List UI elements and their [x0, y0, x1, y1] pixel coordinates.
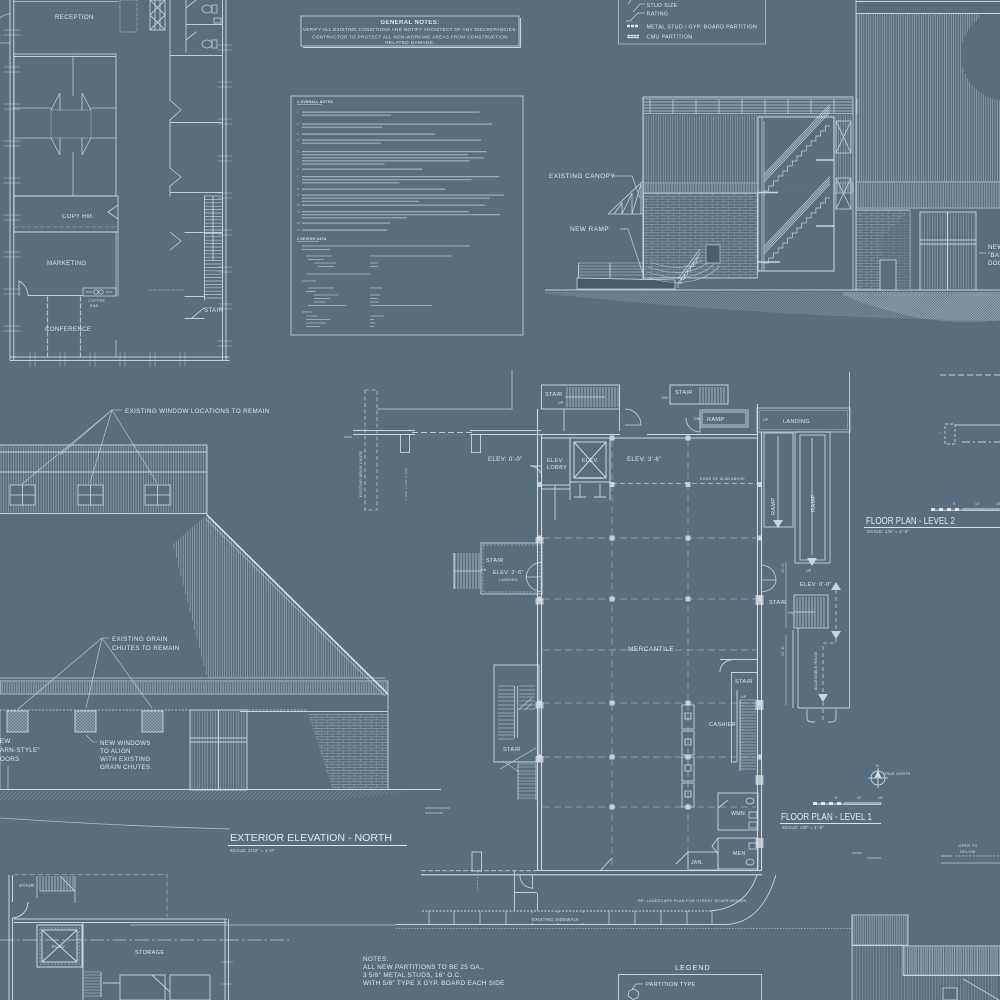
svg-text:ELEV.: ELEV. — [52, 944, 66, 949]
svg-text:WMN.: WMN. — [731, 811, 747, 817]
svg-text:ARN-STYLE": ARN-STYLE" — [0, 747, 40, 754]
svg-text:STUD SIZE: STUD SIZE — [647, 3, 678, 9]
svg-text:15': 15' — [878, 796, 883, 800]
svg-text:STAIR: STAIR — [675, 390, 693, 396]
svg-text:15': 15' — [996, 502, 1000, 506]
svg-text:EDGE OF SLAB ABOVE: EDGE OF SLAB ABOVE — [700, 477, 745, 481]
svg-text:5': 5' — [835, 796, 838, 800]
svg-text:TO ALIGN: TO ALIGN — [100, 748, 131, 755]
svg-text:RAMP: RAMP — [811, 495, 817, 512]
svg-text:STORAGE: STORAGE — [135, 950, 164, 956]
svg-text:CONTRACTOR TO PROTECT ALL NON-: CONTRACTOR TO PROTECT ALL NON-WORKING AR… — [312, 35, 507, 40]
svg-text:EXISTING GRAIN: EXISTING GRAIN — [112, 636, 168, 643]
svg-text:ALL NEW PARTITIONS TO BE 25 GA: ALL NEW PARTITIONS TO BE 25 GA., — [363, 964, 484, 971]
svg-text:RELATED DAMAGE.: RELATED DAMAGE. — [385, 40, 435, 46]
svg-text:ELEV: 3'-6": ELEV: 3'-6" — [627, 456, 662, 463]
svg-text:NEW RAMP: NEW RAMP — [570, 226, 609, 233]
svg-text:10'-6": 10'-6" — [781, 645, 785, 656]
svg-text:BAR: BAR — [90, 304, 99, 308]
svg-text:STAIR: STAIR — [545, 392, 563, 398]
svg-text:DN: DN — [481, 568, 487, 572]
svg-text:COPY RM.: COPY RM. — [62, 214, 94, 220]
svg-text:CASHIER: CASHIER — [709, 722, 736, 728]
svg-text:SCALE: 3/32" = 1'-0": SCALE: 3/32" = 1'-0" — [230, 848, 275, 853]
svg-text:EXISTING GRAIN CHUTE: EXISTING GRAIN CHUTE — [359, 450, 363, 497]
svg-text:COFFEE: COFFEE — [88, 299, 105, 303]
svg-text:10': 10' — [857, 796, 862, 800]
svg-text:LEGEND: LEGEND — [675, 963, 711, 972]
svg-text:SCALE: 1/8" = 1'-0": SCALE: 1/8" = 1'-0" — [867, 529, 909, 534]
svg-text:WITH 5/8" TYPE X GYP. BOARD EA: WITH 5/8" TYPE X GYP. BOARD EACH SIDE — [363, 980, 505, 987]
svg-text:STAIR: STAIR — [486, 558, 504, 564]
svg-text:LOBBY: LOBBY — [547, 465, 567, 471]
svg-text:STAIR: STAIR — [735, 679, 753, 685]
svg-text:OORS: OORS — [0, 756, 19, 763]
svg-text:NOTES:: NOTES: — [363, 956, 389, 963]
svg-text:RATING: RATING — [647, 12, 669, 18]
svg-text:LANDING: LANDING — [783, 419, 810, 425]
svg-text:DN: DN — [662, 396, 668, 400]
svg-text:LANDING: LANDING — [499, 578, 518, 582]
svg-text:MARKETING: MARKETING — [47, 260, 86, 267]
svg-text:EXISTING SIDEWALK: EXISTING SIDEWALK — [532, 917, 579, 922]
svg-text:"BARN-STYLE": "BARN-STYLE" — [988, 252, 1000, 259]
svg-text:MEN: MEN — [733, 851, 745, 857]
svg-text:STAIR: STAIR — [204, 307, 223, 314]
svg-text:1 OVERALL NOTES: 1 OVERALL NOTES — [297, 100, 334, 104]
svg-text:DN: DN — [788, 611, 794, 615]
svg-text:DOORS: DOORS — [988, 260, 1000, 267]
svg-text:ELEV: 3'-6": ELEV: 3'-6" — [493, 570, 524, 576]
svg-text:CHUTES TO REMAIN: CHUTES TO REMAIN — [112, 645, 180, 652]
svg-text:NEW: NEW — [988, 244, 1000, 251]
svg-text:EXTERIOR ELEVATION - NORTH: EXTERIOR ELEVATION - NORTH — [230, 833, 392, 844]
svg-text:FLOOR PLAN - LEVEL 2: FLOOR PLAN - LEVEL 2 — [866, 516, 955, 527]
svg-text:BELOW: BELOW — [960, 850, 975, 854]
svg-text:ELEV.: ELEV. — [547, 458, 564, 464]
svg-text:TRUE NORTH: TRUE NORTH — [884, 772, 911, 776]
svg-text:STAIR: STAIR — [503, 747, 521, 753]
svg-text:ELEV: 0'-0": ELEV: 0'-0" — [488, 456, 523, 463]
svg-text:UP: UP — [763, 418, 769, 422]
svg-text:RECEPTION: RECEPTION — [55, 14, 94, 21]
svg-text:GENERAL NOTES:: GENERAL NOTES: — [380, 20, 439, 26]
svg-text:3 5/8" METAL STUDS, 16" O.C.: 3 5/8" METAL STUDS, 16" O.C. — [363, 972, 462, 979]
svg-text:EW: EW — [0, 738, 11, 745]
svg-text:WITH EXISTING: WITH EXISTING — [100, 756, 150, 763]
svg-text:METAL STUD / GYP. BOARD PARTIT: METAL STUD / GYP. BOARD PARTITION — [647, 25, 758, 31]
svg-text:CONFERENCE: CONFERENCE — [45, 326, 91, 333]
svg-text:EXISTING WINDOW LOCATIONS TO R: EXISTING WINDOW LOCATIONS TO REMAIN — [125, 408, 270, 415]
svg-text:JAN.: JAN. — [691, 860, 703, 866]
svg-text:RE: LANDSCAPE PLAN FOR STREET: RE: LANDSCAPE PLAN FOR STREET SCAPE DESI… — [638, 899, 747, 903]
svg-text:FLOOR PLAN - LEVEL 1: FLOOR PLAN - LEVEL 1 — [781, 812, 872, 823]
svg-text:RAMP: RAMP — [771, 498, 777, 515]
svg-text:OPEN TO: OPEN TO — [958, 844, 977, 848]
svg-text:UP: UP — [558, 401, 564, 405]
svg-text:NEW WINDOWS: NEW WINDOWS — [100, 740, 151, 747]
svg-text:10'-0": 10'-0" — [781, 562, 785, 573]
svg-text:SCALE: 1/8" = 1'-0": SCALE: 1/8" = 1'-0" — [782, 825, 824, 830]
svg-text:RAMP: RAMP — [707, 417, 724, 423]
svg-text:ELEV: 0'-0": ELEV: 0'-0" — [800, 582, 832, 588]
svg-text:DN: DN — [694, 417, 700, 421]
svg-text:GRAIN CHUTES.: GRAIN CHUTES. — [100, 764, 152, 771]
svg-text:STAIR: STAIR — [19, 883, 35, 889]
svg-text:EXISTING CANOPY: EXISTING CANOPY — [549, 173, 615, 180]
svg-text:VERIFY ALL EXISTING CONDITIONS: VERIFY ALL EXISTING CONDITIONS AND NOTIF… — [303, 27, 517, 32]
svg-text:5': 5' — [953, 502, 956, 506]
svg-text:ACCESSIBLE ROUTE: ACCESSIBLE ROUTE — [814, 651, 818, 690]
svg-text:PARTITION TYPE: PARTITION TYPE — [646, 982, 696, 988]
svg-text:MERCANTILE: MERCANTILE — [628, 646, 674, 653]
svg-text:UP: UP — [806, 569, 812, 573]
svg-text:UP: UP — [741, 695, 747, 699]
svg-text:STAIR: STAIR — [769, 600, 787, 606]
svg-text:CMU PARTITION: CMU PARTITION — [647, 35, 693, 41]
svg-text:N: N — [876, 764, 879, 768]
svg-text:10': 10' — [975, 502, 980, 506]
svg-text:2 DESIGN DATA: 2 DESIGN DATA — [297, 237, 327, 241]
